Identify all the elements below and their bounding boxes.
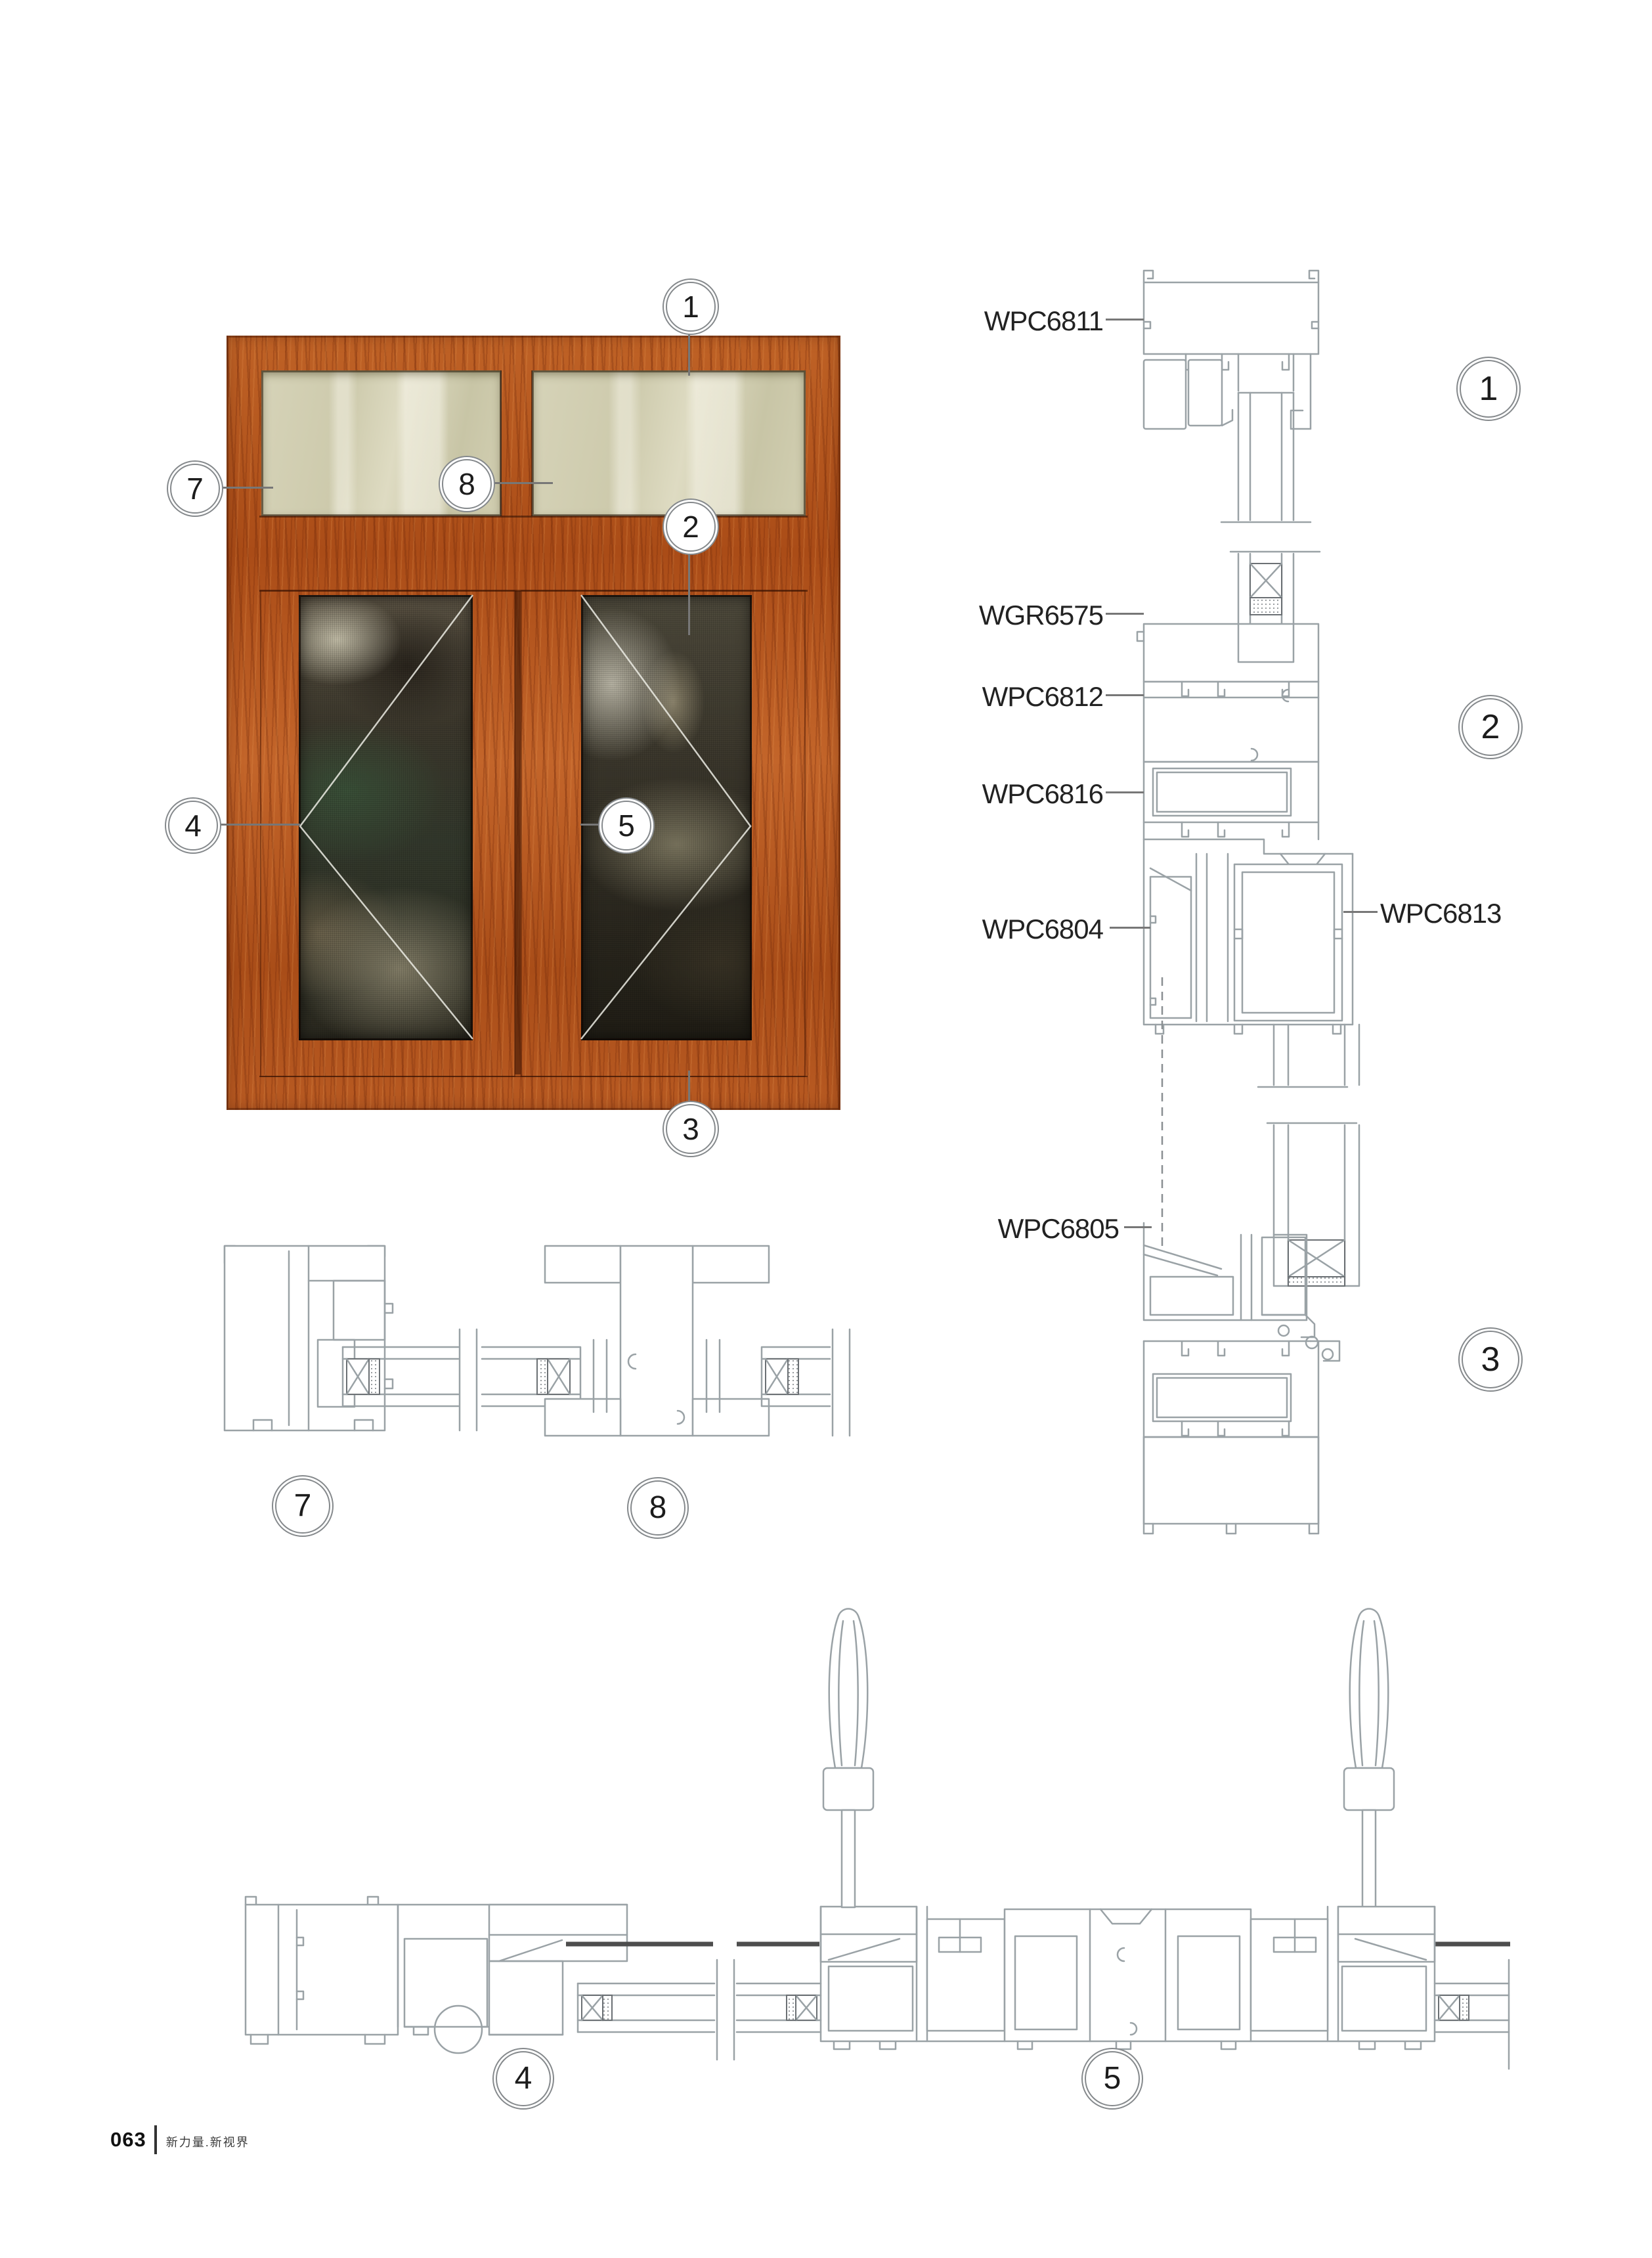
callout-number: 7 (186, 474, 204, 504)
leader-line (580, 824, 600, 826)
label-leader-line (1106, 613, 1144, 615)
callout-marker-2: 2 (1458, 695, 1523, 759)
profile-code-label-WPC6804: WPC6804 (957, 914, 1103, 945)
callout-number: 1 (682, 292, 699, 322)
callout-marker-3: 3 (1458, 1327, 1523, 1392)
profile-code-label-WPC6811: WPC6811 (957, 305, 1103, 337)
callout-marker-1: 1 (663, 278, 719, 335)
footer-divider (154, 2125, 157, 2154)
profile-code-label-WPC6812: WPC6812 (957, 681, 1103, 713)
callout-number: 1 (1479, 372, 1498, 406)
leader-line (494, 482, 553, 484)
horizontal-sections-7-8-drawing (210, 1235, 932, 1451)
leader-line (220, 824, 300, 826)
callout-number: 3 (682, 1114, 699, 1144)
label-leader-line (1106, 791, 1144, 793)
label-leader-line (1343, 911, 1378, 913)
profile-code-label-WPC6805: WPC6805 (973, 1213, 1119, 1245)
profile-code-label-WPC6813: WPC6813 (1380, 898, 1501, 929)
leader-line (688, 334, 690, 376)
callout-marker-4: 4 (165, 797, 221, 854)
window-handle-icon (1344, 1609, 1394, 1908)
label-leader-line (1124, 1226, 1152, 1228)
label-leader-line (1106, 319, 1144, 321)
leader-line (222, 487, 273, 489)
label-leader-line (1110, 927, 1150, 929)
opening-indicator-lines (227, 336, 840, 1110)
callout-marker-1: 1 (1456, 357, 1521, 421)
callout-number: 5 (618, 810, 635, 841)
footer-tagline: 新力量.新视界 (166, 2133, 250, 2150)
callout-number: 4 (515, 2063, 533, 2094)
callout-marker-2: 2 (663, 498, 719, 555)
callout-marker-8: 8 (627, 1477, 689, 1539)
callout-marker-4: 4 (492, 2048, 554, 2110)
callout-number: 3 (1481, 1342, 1500, 1377)
leader-line (688, 1071, 690, 1101)
callout-marker-5: 5 (1081, 2048, 1143, 2110)
leader-line (688, 554, 690, 635)
window-handle-icon (823, 1609, 873, 1908)
page-footer: 063 新力量.新视界 (110, 2125, 250, 2154)
profile-code-label-WGR6575: WGR6575 (957, 600, 1103, 631)
callout-marker-8: 8 (439, 456, 495, 512)
callout-marker-3: 3 (663, 1101, 719, 1157)
callout-number: 2 (1481, 710, 1500, 744)
callout-number: 7 (294, 1490, 312, 1522)
window-photo (227, 336, 840, 1110)
callout-number: 5 (1104, 2063, 1121, 2094)
callout-number: 8 (649, 1492, 667, 1524)
callout-number: 2 (682, 512, 699, 542)
callout-marker-7: 7 (167, 460, 223, 517)
horizontal-sections-4-5-drawing (230, 1596, 1530, 2082)
callout-number: 8 (458, 469, 475, 499)
profile-code-label-WPC6816: WPC6816 (957, 778, 1103, 810)
callout-marker-5: 5 (598, 797, 655, 854)
callout-number: 4 (185, 810, 202, 841)
page-number: 063 (110, 2128, 146, 2152)
catalog-page: 063 新力量.新视界 17824531237845WPC6811WGR6575… (0, 0, 1652, 2258)
label-leader-line (1106, 694, 1144, 696)
callout-marker-7: 7 (272, 1475, 334, 1537)
